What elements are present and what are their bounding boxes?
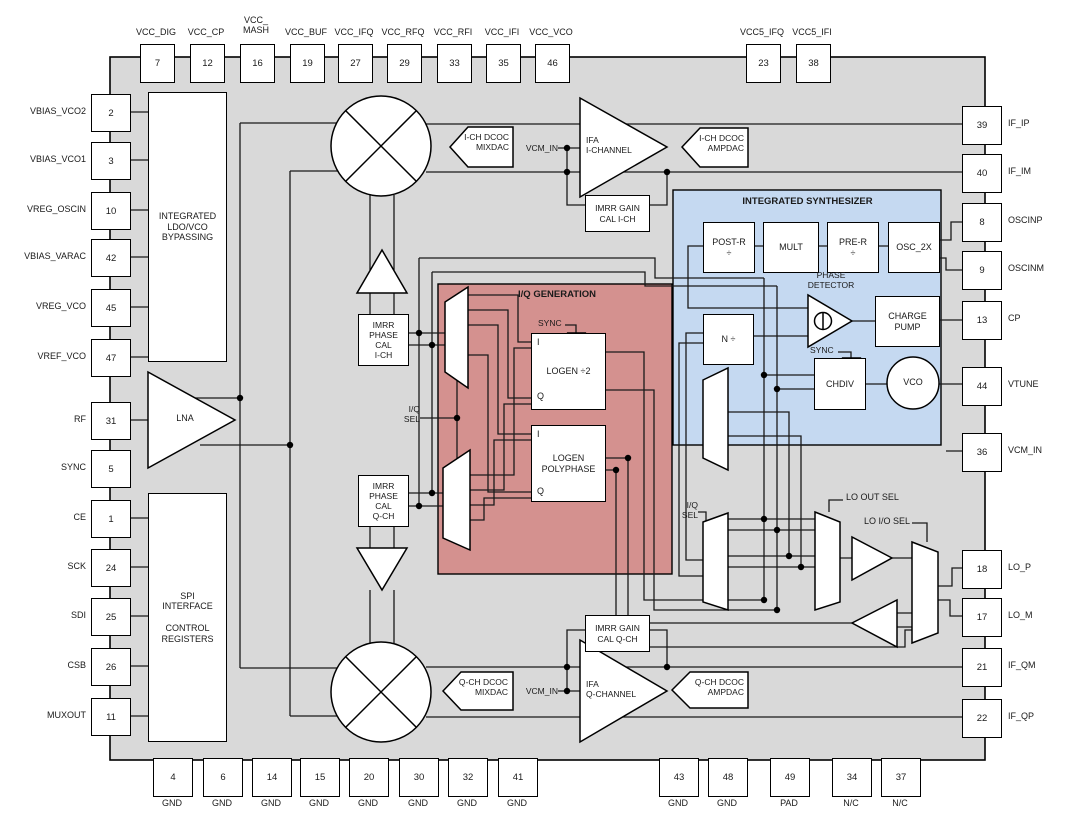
spi-interface-block: SPI INTERFACE CONTROL REGISTERS xyxy=(148,493,227,742)
iq-mux-top-icon xyxy=(445,287,468,388)
pin-20-label: GND xyxy=(346,799,390,809)
pin-26: 26 xyxy=(91,648,131,686)
pin-21: 21 xyxy=(962,648,1002,687)
pin-44-label: VTUNE xyxy=(1008,380,1039,390)
pin-8-label: OSCINP xyxy=(1008,216,1043,226)
pin-1: 1 xyxy=(91,500,131,538)
pin-49-label: PAD xyxy=(767,799,811,809)
pin-7-label: VCC_DIG xyxy=(134,28,178,38)
pin-27: 27 xyxy=(338,44,373,83)
pin-24: 24 xyxy=(91,549,131,587)
pin-23-label: VCC5_IFQ xyxy=(737,28,787,38)
pin-31-label: RF xyxy=(16,415,86,425)
pin-2-label: VBIAS_VCO2 xyxy=(16,107,86,117)
pin-37-label: N/C xyxy=(878,799,922,809)
pin-48-label: GND xyxy=(705,799,749,809)
pin-2: 2 xyxy=(91,94,131,132)
lo-io-sel-mux-icon xyxy=(912,542,938,643)
pin-49: 49 xyxy=(770,758,810,797)
pin-23: 23 xyxy=(746,44,781,83)
ifa-i-label: IFA I-CHANNEL xyxy=(586,135,632,155)
pin-11: 11 xyxy=(91,698,131,736)
pin-39-label: IF_IP xyxy=(1008,119,1030,129)
sync-chdiv-label: SYNC xyxy=(810,345,834,355)
pin-25-label: SDI xyxy=(16,611,86,621)
synthesizer-title: INTEGRATED SYNTHESIZER xyxy=(700,196,915,207)
pin-27-label: VCC_IFQ xyxy=(332,28,376,38)
pin-4-label: GND xyxy=(150,799,194,809)
mixdac-i-label: I-CH DCOC MIXDAC xyxy=(455,132,509,152)
ampdac-q-label: Q-CH DCOC AMPDAC xyxy=(686,677,744,697)
iq-sel-mux-icon xyxy=(703,513,728,610)
phase-detector-label: PHASE DETECTOR xyxy=(796,270,866,290)
pin-45-label: VREG_VCO xyxy=(16,302,86,312)
pin-19-label: VCC_BUF xyxy=(284,28,328,38)
pin-7: 7 xyxy=(140,44,175,83)
iq-sel-lower-label: I/Q SEL xyxy=(666,500,698,520)
pin-21-label: IF_QM xyxy=(1008,661,1036,671)
pin-29: 29 xyxy=(387,44,422,83)
ldo-bypass-block: INTEGRATED LDO/VCO BYPASSING xyxy=(148,92,227,362)
pin-39: 39 xyxy=(962,106,1002,145)
pin-30: 30 xyxy=(399,758,439,797)
pin-47: 47 xyxy=(91,339,131,377)
pin-43: 43 xyxy=(659,758,699,797)
pin-22-label: IF_QP xyxy=(1008,712,1034,722)
pin-32: 32 xyxy=(448,758,488,797)
synth-mux-icon xyxy=(703,368,728,470)
pin-1-label: CE xyxy=(16,513,86,523)
pin-10: 10 xyxy=(91,192,131,230)
pin-42: 42 xyxy=(91,239,131,277)
iq-mux-bottom-icon xyxy=(443,450,470,550)
pin-31: 31 xyxy=(91,402,131,440)
pin-36: 36 xyxy=(962,433,1002,472)
pin-9-label: OSCINM xyxy=(1008,264,1044,274)
n-divider-block: N ÷ xyxy=(703,314,754,365)
lna-label: LNA xyxy=(160,413,210,424)
pin-38-label: VCC5_IFI xyxy=(787,28,837,38)
ifa-q-label: IFA Q-CHANNEL xyxy=(586,679,636,699)
pin-29-label: VCC_RFQ xyxy=(381,28,425,38)
pin-13-label: CP xyxy=(1008,314,1021,324)
block-diagram: INTEGRATED LDO/VCO BYPASSING SPI INTERFA… xyxy=(0,0,1068,822)
pin-46-label: VCC_VCO xyxy=(529,28,573,38)
pin-42-label: VBIAS_VARAC xyxy=(10,252,86,262)
osc-2x-block: OSC_2X xyxy=(888,222,940,273)
post-r-divider-block: POST-R ÷ xyxy=(703,222,755,273)
pin-35-label: VCC_IFI xyxy=(480,28,524,38)
pin-13: 13 xyxy=(962,301,1002,340)
chdiv-block: CHDIV xyxy=(814,358,866,410)
lo-out-sel-label: LO OUT SEL xyxy=(846,492,899,503)
pin-40: 40 xyxy=(962,154,1002,193)
pin-18-label: LO_P xyxy=(1008,563,1031,573)
pre-r-divider-block: PRE-R ÷ xyxy=(827,222,879,273)
pin-10-label: VREG_OSCIN xyxy=(16,205,86,215)
pin-34-label: N/C xyxy=(829,799,873,809)
pin-15-label: GND xyxy=(297,799,341,809)
charge-pump-block: CHARGE PUMP xyxy=(875,296,940,347)
logen-div2-port-i: I xyxy=(537,337,540,348)
pin-14-label: GND xyxy=(249,799,293,809)
pin-15: 15 xyxy=(300,758,340,797)
sync-logen-label: SYNC xyxy=(538,318,562,328)
pin-16-label: VCC_ MASH xyxy=(234,16,278,36)
pin-33: 33 xyxy=(437,44,472,83)
pin-18: 18 xyxy=(962,550,1002,589)
pin-45: 45 xyxy=(91,289,131,327)
pin-11-label: MUXOUT xyxy=(16,711,86,721)
iq-generation-title: I/Q GENERATION xyxy=(477,289,637,300)
pin-33-label: VCC_RFI xyxy=(431,28,475,38)
mixdac-q-label: Q-CH DCOC MIXDAC xyxy=(450,677,508,697)
pin-43-label: GND xyxy=(656,799,700,809)
pin-3: 3 xyxy=(91,142,131,180)
pin-26-label: CSB xyxy=(16,661,86,671)
pin-5-label: SYNC xyxy=(16,463,86,473)
pin-41-label: GND xyxy=(495,799,539,809)
pin-5: 5 xyxy=(91,450,131,488)
pin-30-label: GND xyxy=(396,799,440,809)
logen-poly-port-q: Q xyxy=(537,486,544,497)
imrr-phase-cal-i-block: IMRR PHASE CAL I-CH xyxy=(358,314,409,366)
logen-poly-port-i: I xyxy=(537,429,540,440)
pin-12-label: VCC_CP xyxy=(184,28,228,38)
pin-19: 19 xyxy=(290,44,325,83)
lo-out-sel-mux-icon xyxy=(815,512,840,610)
pin-38: 38 xyxy=(796,44,831,83)
pin-25: 25 xyxy=(91,598,131,636)
pin-40-label: IF_IM xyxy=(1008,167,1031,177)
pin-37: 37 xyxy=(881,758,921,797)
pin-35: 35 xyxy=(486,44,521,83)
imrr-phase-cal-q-block: IMRR PHASE CAL Q-CH xyxy=(358,475,409,527)
pin-20: 20 xyxy=(349,758,389,797)
imrr-gain-cal-i-block: IMRR GAIN CAL I-CH xyxy=(585,195,650,232)
pin-6-label: GND xyxy=(200,799,244,809)
imrr-gain-cal-q-block: IMRR GAIN CAL Q-CH xyxy=(585,615,650,652)
mult-block: MULT xyxy=(763,222,819,273)
logen-div2-port-q: Q xyxy=(537,391,544,402)
pin-32-label: GND xyxy=(445,799,489,809)
pin-6: 6 xyxy=(203,758,243,797)
vco-label: VCO xyxy=(896,377,930,388)
pin-4: 4 xyxy=(153,758,193,797)
pin-9: 9 xyxy=(962,251,1002,290)
iq-sel-left-label: I/Q SEL xyxy=(385,404,420,424)
pin-48: 48 xyxy=(708,758,748,797)
pin-46: 46 xyxy=(535,44,570,83)
pin-34: 34 xyxy=(832,758,872,797)
pin-12: 12 xyxy=(190,44,225,83)
pin-24-label: SCK xyxy=(16,562,86,572)
pin-44: 44 xyxy=(962,367,1002,406)
pin-8: 8 xyxy=(962,203,1002,242)
lo-io-sel-label: LO I/O SEL xyxy=(853,516,910,527)
pin-3-label: VBIAS_VCO1 xyxy=(16,155,86,165)
pin-17-label: LO_M xyxy=(1008,611,1033,621)
pin-16: 16 xyxy=(240,44,275,83)
pin-47-label: VREF_VCO xyxy=(16,352,86,362)
vcm-in-i-label: VCM_IN xyxy=(508,143,558,153)
pin-36-label: VCM_IN xyxy=(1008,446,1042,456)
pin-17: 17 xyxy=(962,598,1002,637)
pin-41: 41 xyxy=(498,758,538,797)
vcm-in-q-label: VCM_IN xyxy=(508,686,558,696)
pin-14: 14 xyxy=(252,758,292,797)
ampdac-i-label: I-CH DCOC AMPDAC xyxy=(690,133,744,153)
pin-22: 22 xyxy=(962,699,1002,738)
